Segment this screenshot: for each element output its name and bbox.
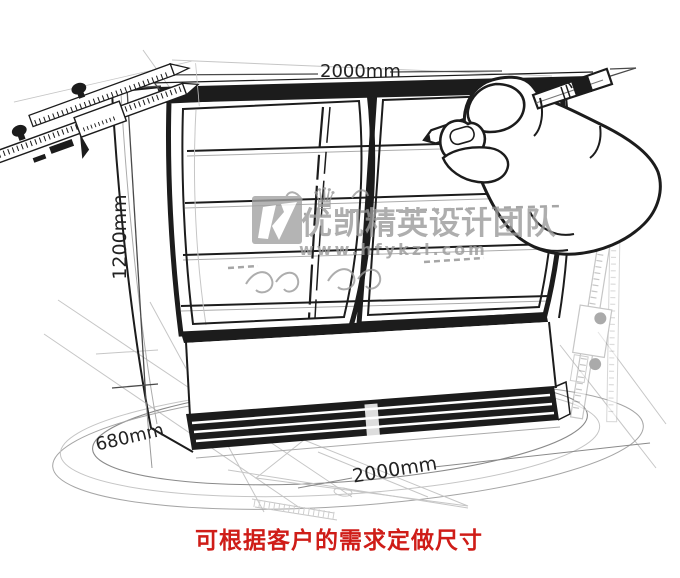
- product-dimension-illustration: ♛ 优凯精英设计团队 www.hfykzl.com 2000mm 1200mm …: [0, 0, 680, 578]
- dimension-label-top-width: 2000mm: [320, 61, 401, 82]
- customization-note: 可根据客户的需求定做尺寸: [159, 521, 519, 555]
- left-glass-door: [169, 92, 373, 334]
- vernier-caliper-illustration: [0, 39, 213, 188]
- line-art-canvas: [0, 0, 680, 578]
- dimension-label-height: 1200mm: [109, 187, 131, 287]
